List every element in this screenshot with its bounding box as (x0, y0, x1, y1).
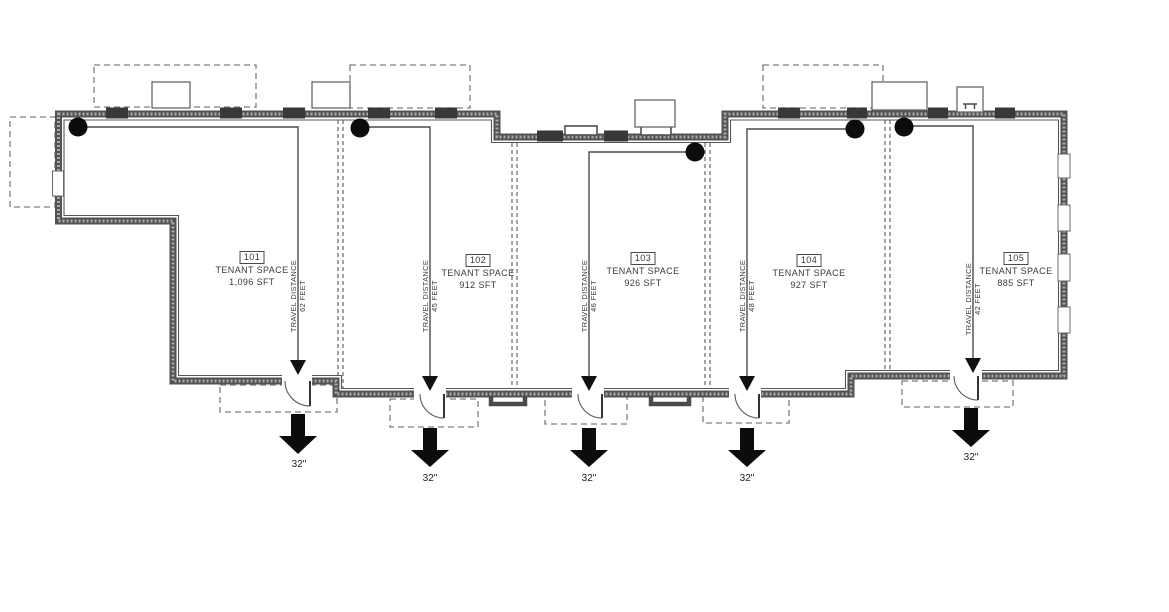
room-name: TENANT SPACE (442, 268, 515, 279)
room-number: 104 (797, 254, 821, 267)
room-number: 103 (631, 252, 655, 265)
room-number: 102 (466, 254, 490, 267)
windows (53, 154, 1071, 333)
exit-width-105: 32" (964, 452, 979, 463)
building-walls (59, 114, 1065, 404)
room-name: TENANT SPACE (216, 265, 289, 276)
exit-arrow-103 (570, 428, 608, 467)
travel-distance-103: TRAVEL DISTANCE 46 FEET (580, 260, 598, 332)
room-name: TENANT SPACE (773, 268, 846, 279)
travel-distance-105: TRAVEL DISTANCE 42 FEET (964, 263, 982, 335)
exit-arrow-102 (411, 428, 449, 467)
tenant-space-103: 103 TENANT SPACE 926 SFT (607, 252, 680, 289)
room-number: 101 (240, 251, 264, 264)
exit-arrows (279, 408, 990, 467)
tenant-space-101: 101 TENANT SPACE 1,096 SFT (216, 251, 289, 288)
room-area: 885 SFT (997, 278, 1034, 289)
exit-width-101: 32" (292, 459, 307, 470)
travel-distance-104: TRAVEL DISTANCE 48 FEET (738, 260, 756, 332)
travel-distance-102: TRAVEL DISTANCE 45 FEET (421, 260, 439, 332)
travel-distance-101: TRAVEL DISTANCE 62 FEET (289, 260, 307, 332)
room-area: 1,096 SFT (229, 277, 275, 288)
tenant-space-104: 104 TENANT SPACE 927 SFT (773, 254, 846, 291)
exit-arrow-104 (728, 428, 766, 467)
exit-arrow-105 (952, 408, 990, 447)
room-area: 927 SFT (790, 280, 827, 291)
room-name: TENANT SPACE (980, 266, 1053, 277)
room-area: 926 SFT (624, 278, 661, 289)
room-number: 105 (1004, 252, 1028, 265)
floor-plan: 101 TENANT SPACE 1,096 SFT 102 TENANT SP… (0, 0, 1169, 612)
exit-arrow-101 (279, 414, 317, 454)
exit-width-102: 32" (423, 473, 438, 484)
exit-width-103: 32" (582, 473, 597, 484)
room-area: 912 SFT (459, 280, 496, 291)
room-name: TENANT SPACE (607, 266, 680, 277)
tenant-space-102: 102 TENANT SPACE 912 SFT (442, 254, 515, 291)
tenant-space-105: 105 TENANT SPACE 885 SFT (980, 252, 1053, 289)
exit-width-104: 32" (740, 473, 755, 484)
